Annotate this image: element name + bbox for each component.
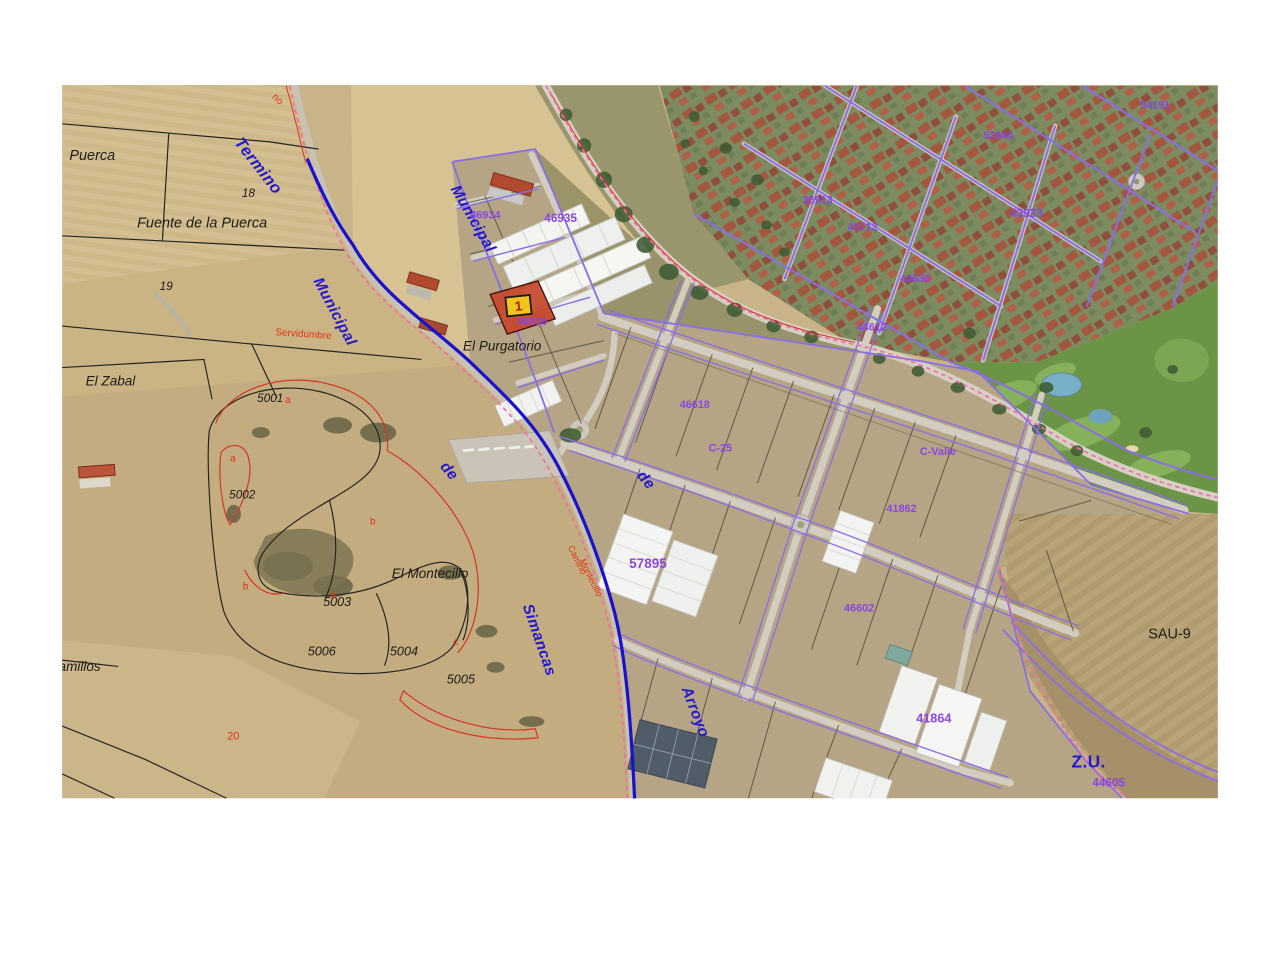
map-label-41862: 41862	[886, 503, 916, 515]
map-label-54191: 54191	[1140, 99, 1170, 111]
map-label-el-montecillo: El Montecillo	[392, 566, 469, 581]
map-label-el-zabal: El Zabal	[86, 374, 137, 389]
map-label-43639: 43639	[900, 273, 930, 285]
map-label-a: a	[330, 590, 336, 601]
map-label-46934: 46934	[470, 210, 500, 222]
map-label-z-u-: Z.U.	[1072, 752, 1106, 772]
map-label-a: a	[230, 453, 236, 464]
map-label-sau-9: SAU-9	[1148, 626, 1191, 642]
map-label-44612: 44612	[857, 322, 887, 334]
map-label-c-25: C-25	[709, 443, 732, 455]
map-label-fuente-de-la-puerca: Fuente de la Puerca	[137, 216, 267, 232]
map-label-36913: 36913	[803, 194, 833, 206]
map-label-el-purgatorio: El Purgatorio	[463, 338, 542, 353]
map-label-52944: 52944	[983, 130, 1013, 142]
map-label-amillos: amillos	[59, 659, 101, 674]
map-label-5003: 5003	[323, 595, 351, 609]
map-label-18: 18	[242, 187, 256, 200]
map-label-44605: 44605	[1092, 777, 1125, 790]
map-viewport[interactable]: 1 PuercaFuente de la Puerca1819El Zabal5…	[0, 85, 1280, 875]
map-label-46618: 46618	[680, 399, 710, 411]
map-label-46936: 46936	[517, 316, 547, 328]
map-label-5001: 5001	[257, 392, 283, 405]
map-label-c-valle: C-Valle	[920, 446, 956, 458]
map-canvas[interactable]: 1 PuercaFuente de la Puerca1819El Zabal5…	[0, 85, 1280, 875]
map-label-5002: 5002	[229, 489, 256, 502]
map-label-5005: 5005	[447, 673, 476, 687]
map-label-puerca: Puerca	[69, 148, 115, 164]
map-label-b: b	[243, 582, 249, 593]
map-label-5004: 5004	[390, 645, 418, 659]
selected-parcel-marker[interactable]: 1	[505, 295, 531, 316]
map-label-b: b	[370, 517, 376, 528]
map-label-c: c	[453, 637, 458, 648]
map-label-19: 19	[160, 280, 174, 293]
viewer-frame: 1 PuercaFuente de la Puerca1819El Zabal5…	[0, 0, 1280, 960]
map-label-57895: 57895	[629, 556, 667, 571]
map-label-46935: 46935	[544, 212, 577, 225]
map-label-43712: 43712	[848, 221, 878, 233]
pond-small	[1089, 409, 1112, 423]
map-label-43933: 43933	[1010, 207, 1043, 220]
map-label-20: 20	[227, 731, 239, 743]
map-label-a: a	[285, 395, 291, 406]
map-label-5006: 5006	[308, 645, 337, 659]
map-label-46602: 46602	[844, 602, 874, 614]
map-label-41864: 41864	[916, 711, 951, 725]
